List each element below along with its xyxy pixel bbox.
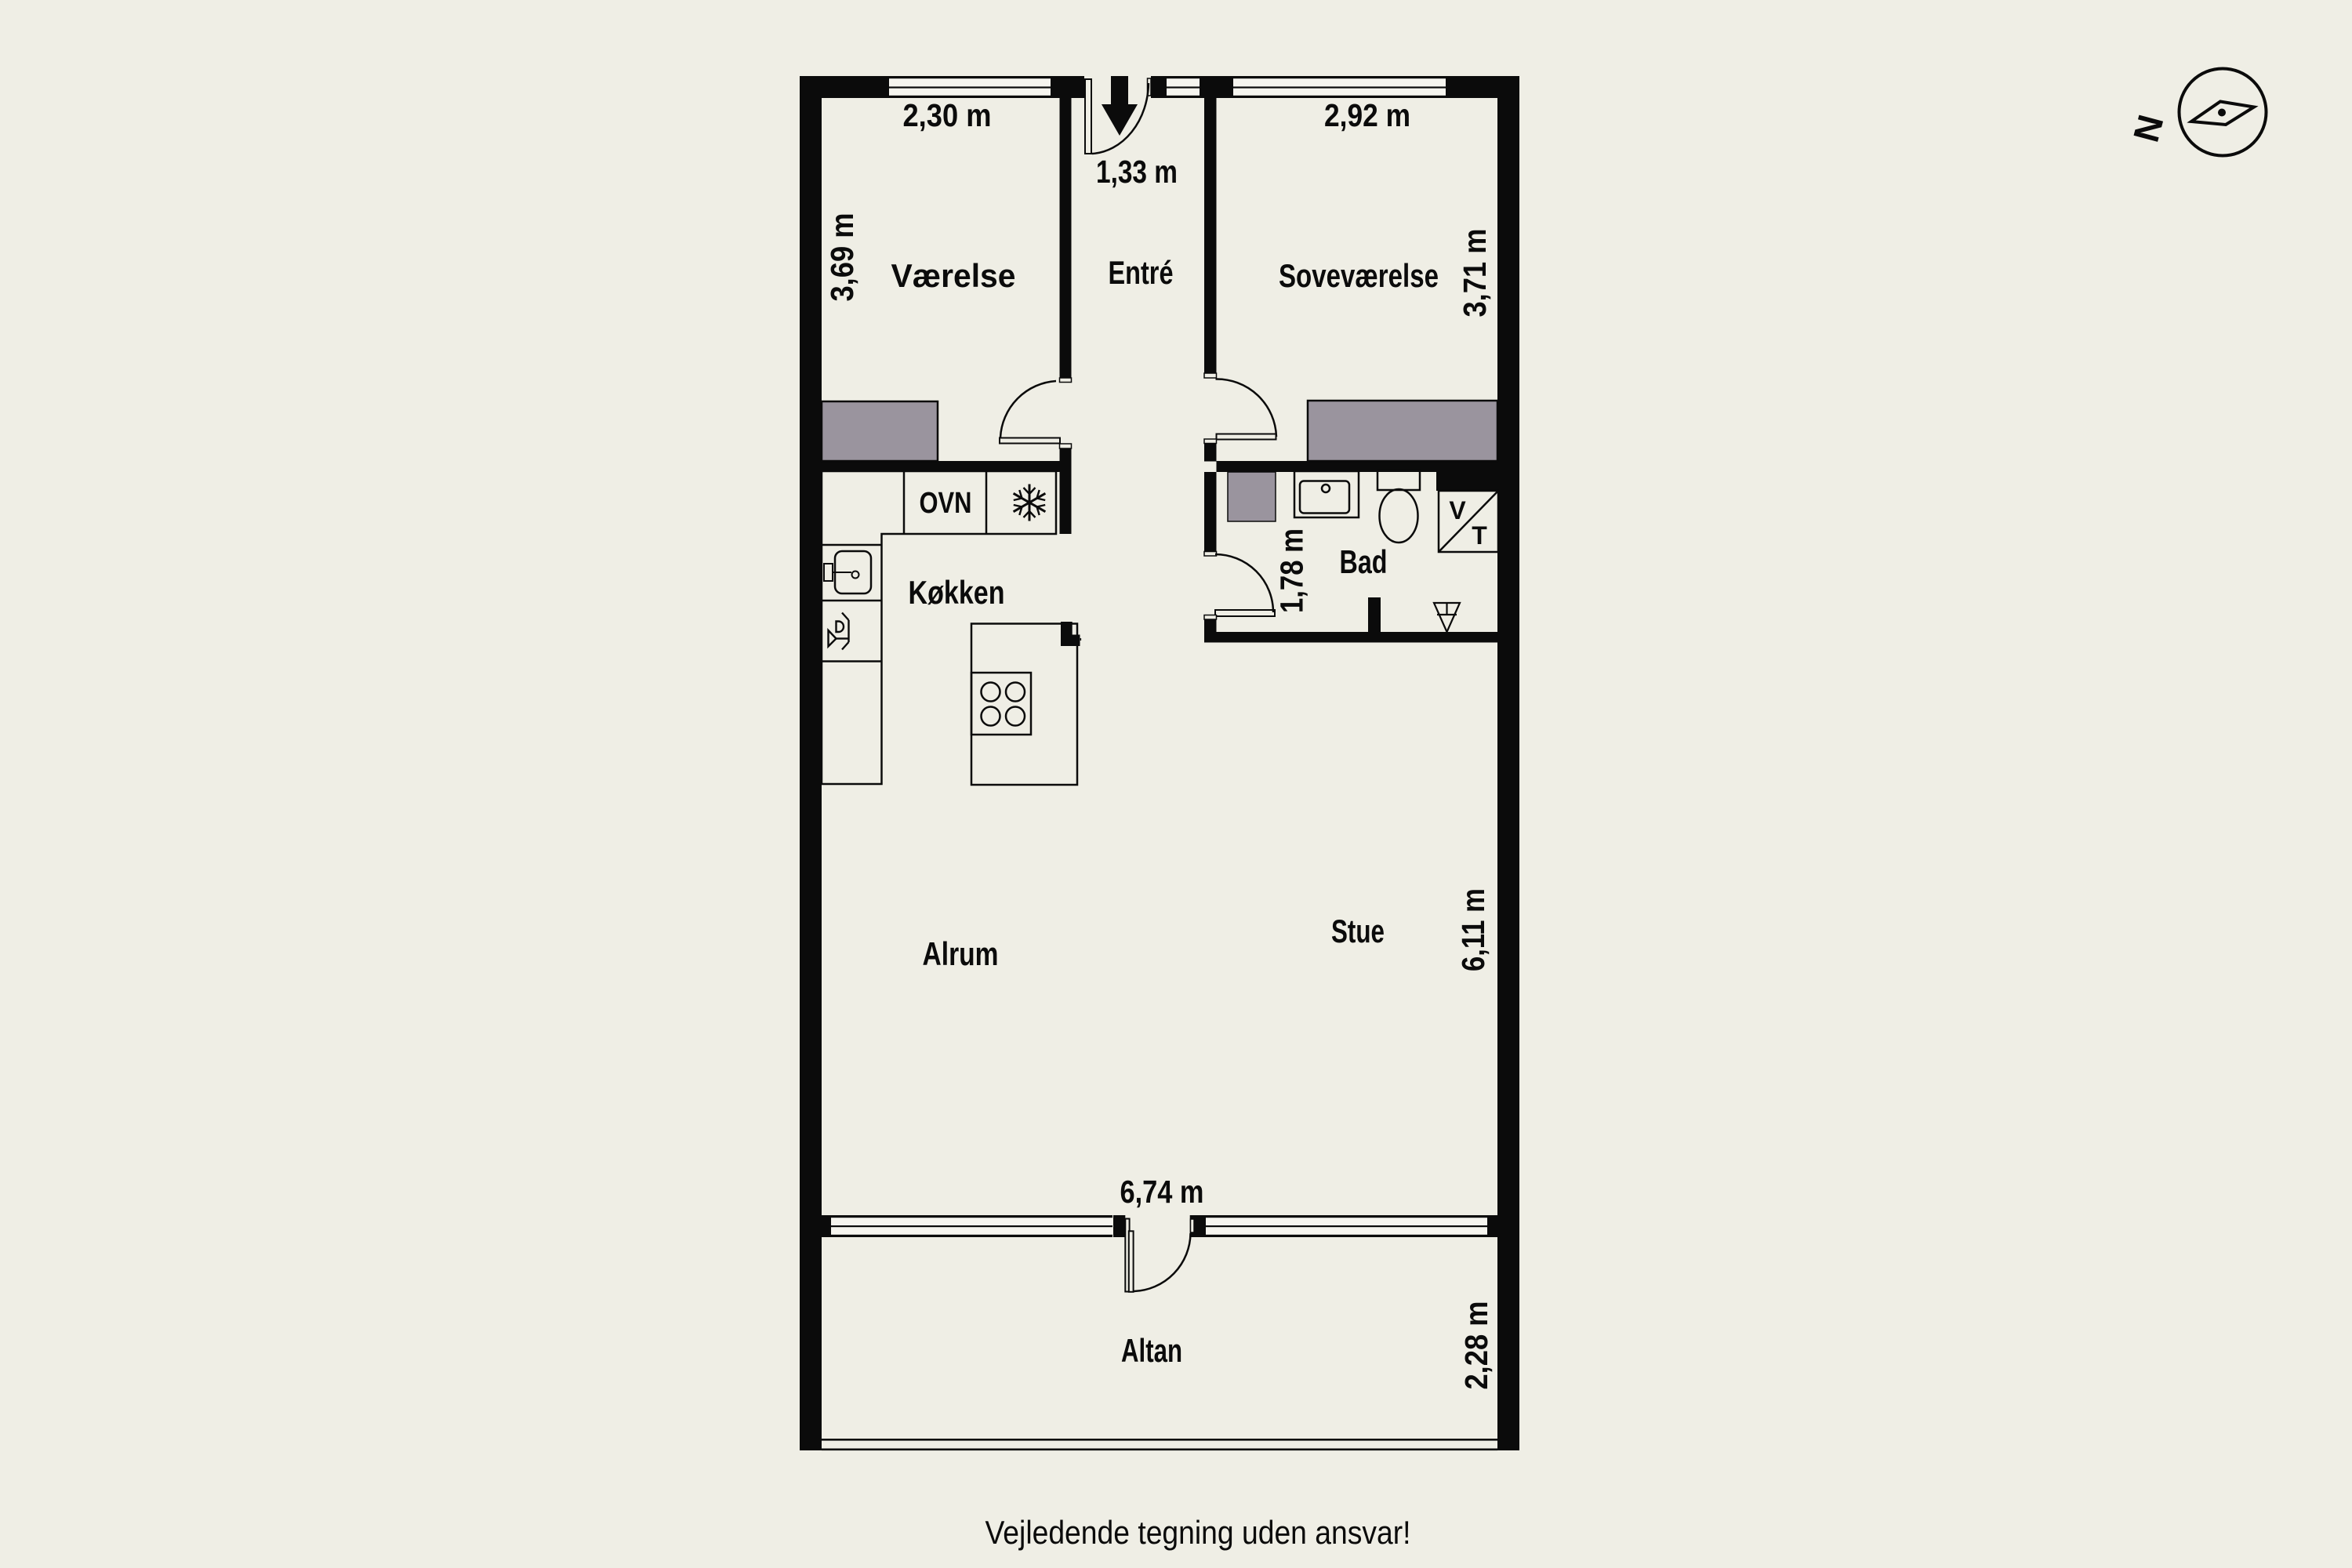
svg-text:3,71 m: 3,71 m (1457, 229, 1493, 318)
svg-text:1,33 m: 1,33 m (1096, 154, 1178, 190)
svg-text:6,74 m: 6,74 m (1120, 1174, 1204, 1210)
svg-text:2,28 m: 2,28 m (1458, 1301, 1494, 1390)
svg-text:Køkken: Køkken (909, 574, 1005, 611)
svg-text:2,30 m: 2,30 m (903, 97, 992, 133)
svg-text:Alrum: Alrum (923, 935, 999, 972)
svg-text:Soveværelse: Soveværelse (1279, 257, 1439, 294)
svg-text:Værelse: Værelse (891, 257, 1016, 294)
svg-text:Entré: Entré (1109, 254, 1174, 291)
svg-text:Stue: Stue (1331, 913, 1385, 949)
svg-text:Altan: Altan (1121, 1332, 1182, 1369)
svg-text:3,69 m: 3,69 m (824, 213, 860, 302)
svg-text:Bad: Bad (1340, 543, 1388, 580)
svg-text:1,78 m: 1,78 m (1274, 528, 1310, 613)
svg-text:V: V (1449, 496, 1466, 524)
svg-text:OVN: OVN (920, 487, 972, 520)
svg-text:2,92 m: 2,92 m (1324, 97, 1410, 133)
svg-text:Vejledende tegning uden ansvar: Vejledende tegning uden ansvar! (985, 1514, 1411, 1551)
svg-text:6,11 m: 6,11 m (1455, 888, 1491, 971)
svg-text:T: T (1472, 521, 1487, 550)
